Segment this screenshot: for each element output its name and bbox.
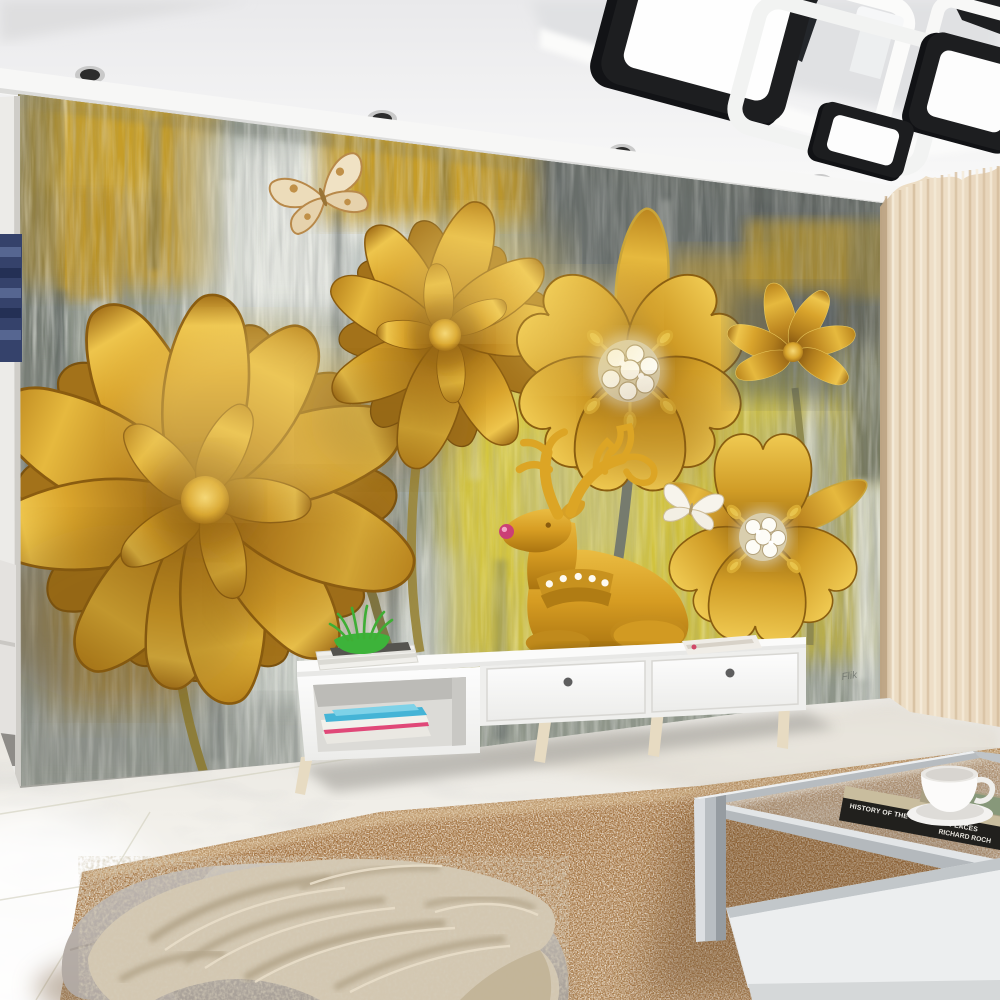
svg-text:Flik: Flik [841, 670, 859, 683]
